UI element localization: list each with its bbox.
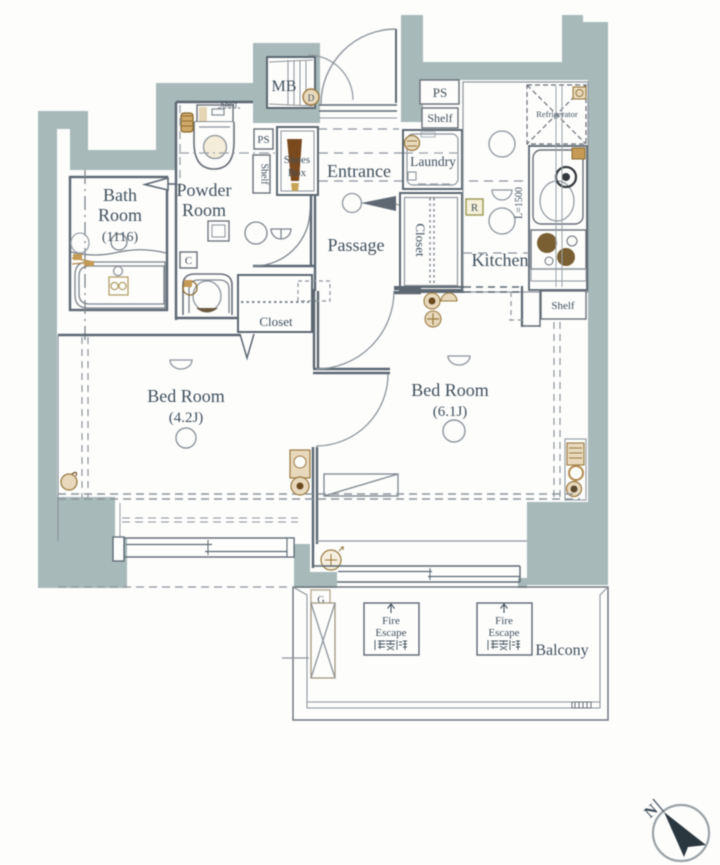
svg-text:Room: Room <box>182 200 226 220</box>
svg-text:PS: PS <box>433 85 447 100</box>
svg-text:Escape: Escape <box>375 627 406 639</box>
svg-text:Shelf: Shelf <box>259 163 270 185</box>
svg-text:R: R <box>471 202 479 214</box>
svg-text:Shelf: Shelf <box>427 111 452 125</box>
svg-text:(4.2J): (4.2J) <box>169 410 204 426</box>
svg-text:L=1500: L=1500 <box>514 187 525 219</box>
svg-text:(6.1J): (6.1J) <box>433 404 468 420</box>
svg-text:Room: Room <box>98 205 142 225</box>
svg-text:Shelf: Shelf <box>221 100 238 109</box>
svg-text:Fire: Fire <box>382 615 400 627</box>
svg-text:Shoes: Shoes <box>284 154 310 166</box>
svg-text:Box: Box <box>288 167 307 179</box>
svg-text:Refrigerator: Refrigerator <box>536 109 578 119</box>
svg-text:Powder: Powder <box>177 180 232 200</box>
svg-text:C: C <box>185 255 192 267</box>
svg-text:Bath: Bath <box>103 185 137 205</box>
svg-text:Passage: Passage <box>328 235 385 255</box>
svg-text:Escape: Escape <box>488 627 519 639</box>
svg-text:Bed Room: Bed Room <box>147 386 225 406</box>
svg-text:Kitchen: Kitchen <box>472 250 529 270</box>
svg-text:(1116): (1116) <box>102 230 139 245</box>
svg-text:Closet: Closet <box>259 314 293 329</box>
svg-text:PS: PS <box>257 134 269 146</box>
svg-text:Fire: Fire <box>495 615 513 627</box>
svg-text:Entrance: Entrance <box>327 161 391 181</box>
svg-text:Closet: Closet <box>413 223 428 257</box>
svg-text:Bed Room: Bed Room <box>411 380 489 400</box>
svg-text:Shelf: Shelf <box>551 300 575 312</box>
svg-text:Balcony: Balcony <box>535 642 588 659</box>
svg-text:Laundry: Laundry <box>410 154 456 169</box>
svg-text:MB: MB <box>272 78 297 95</box>
svg-text:D: D <box>308 93 315 103</box>
